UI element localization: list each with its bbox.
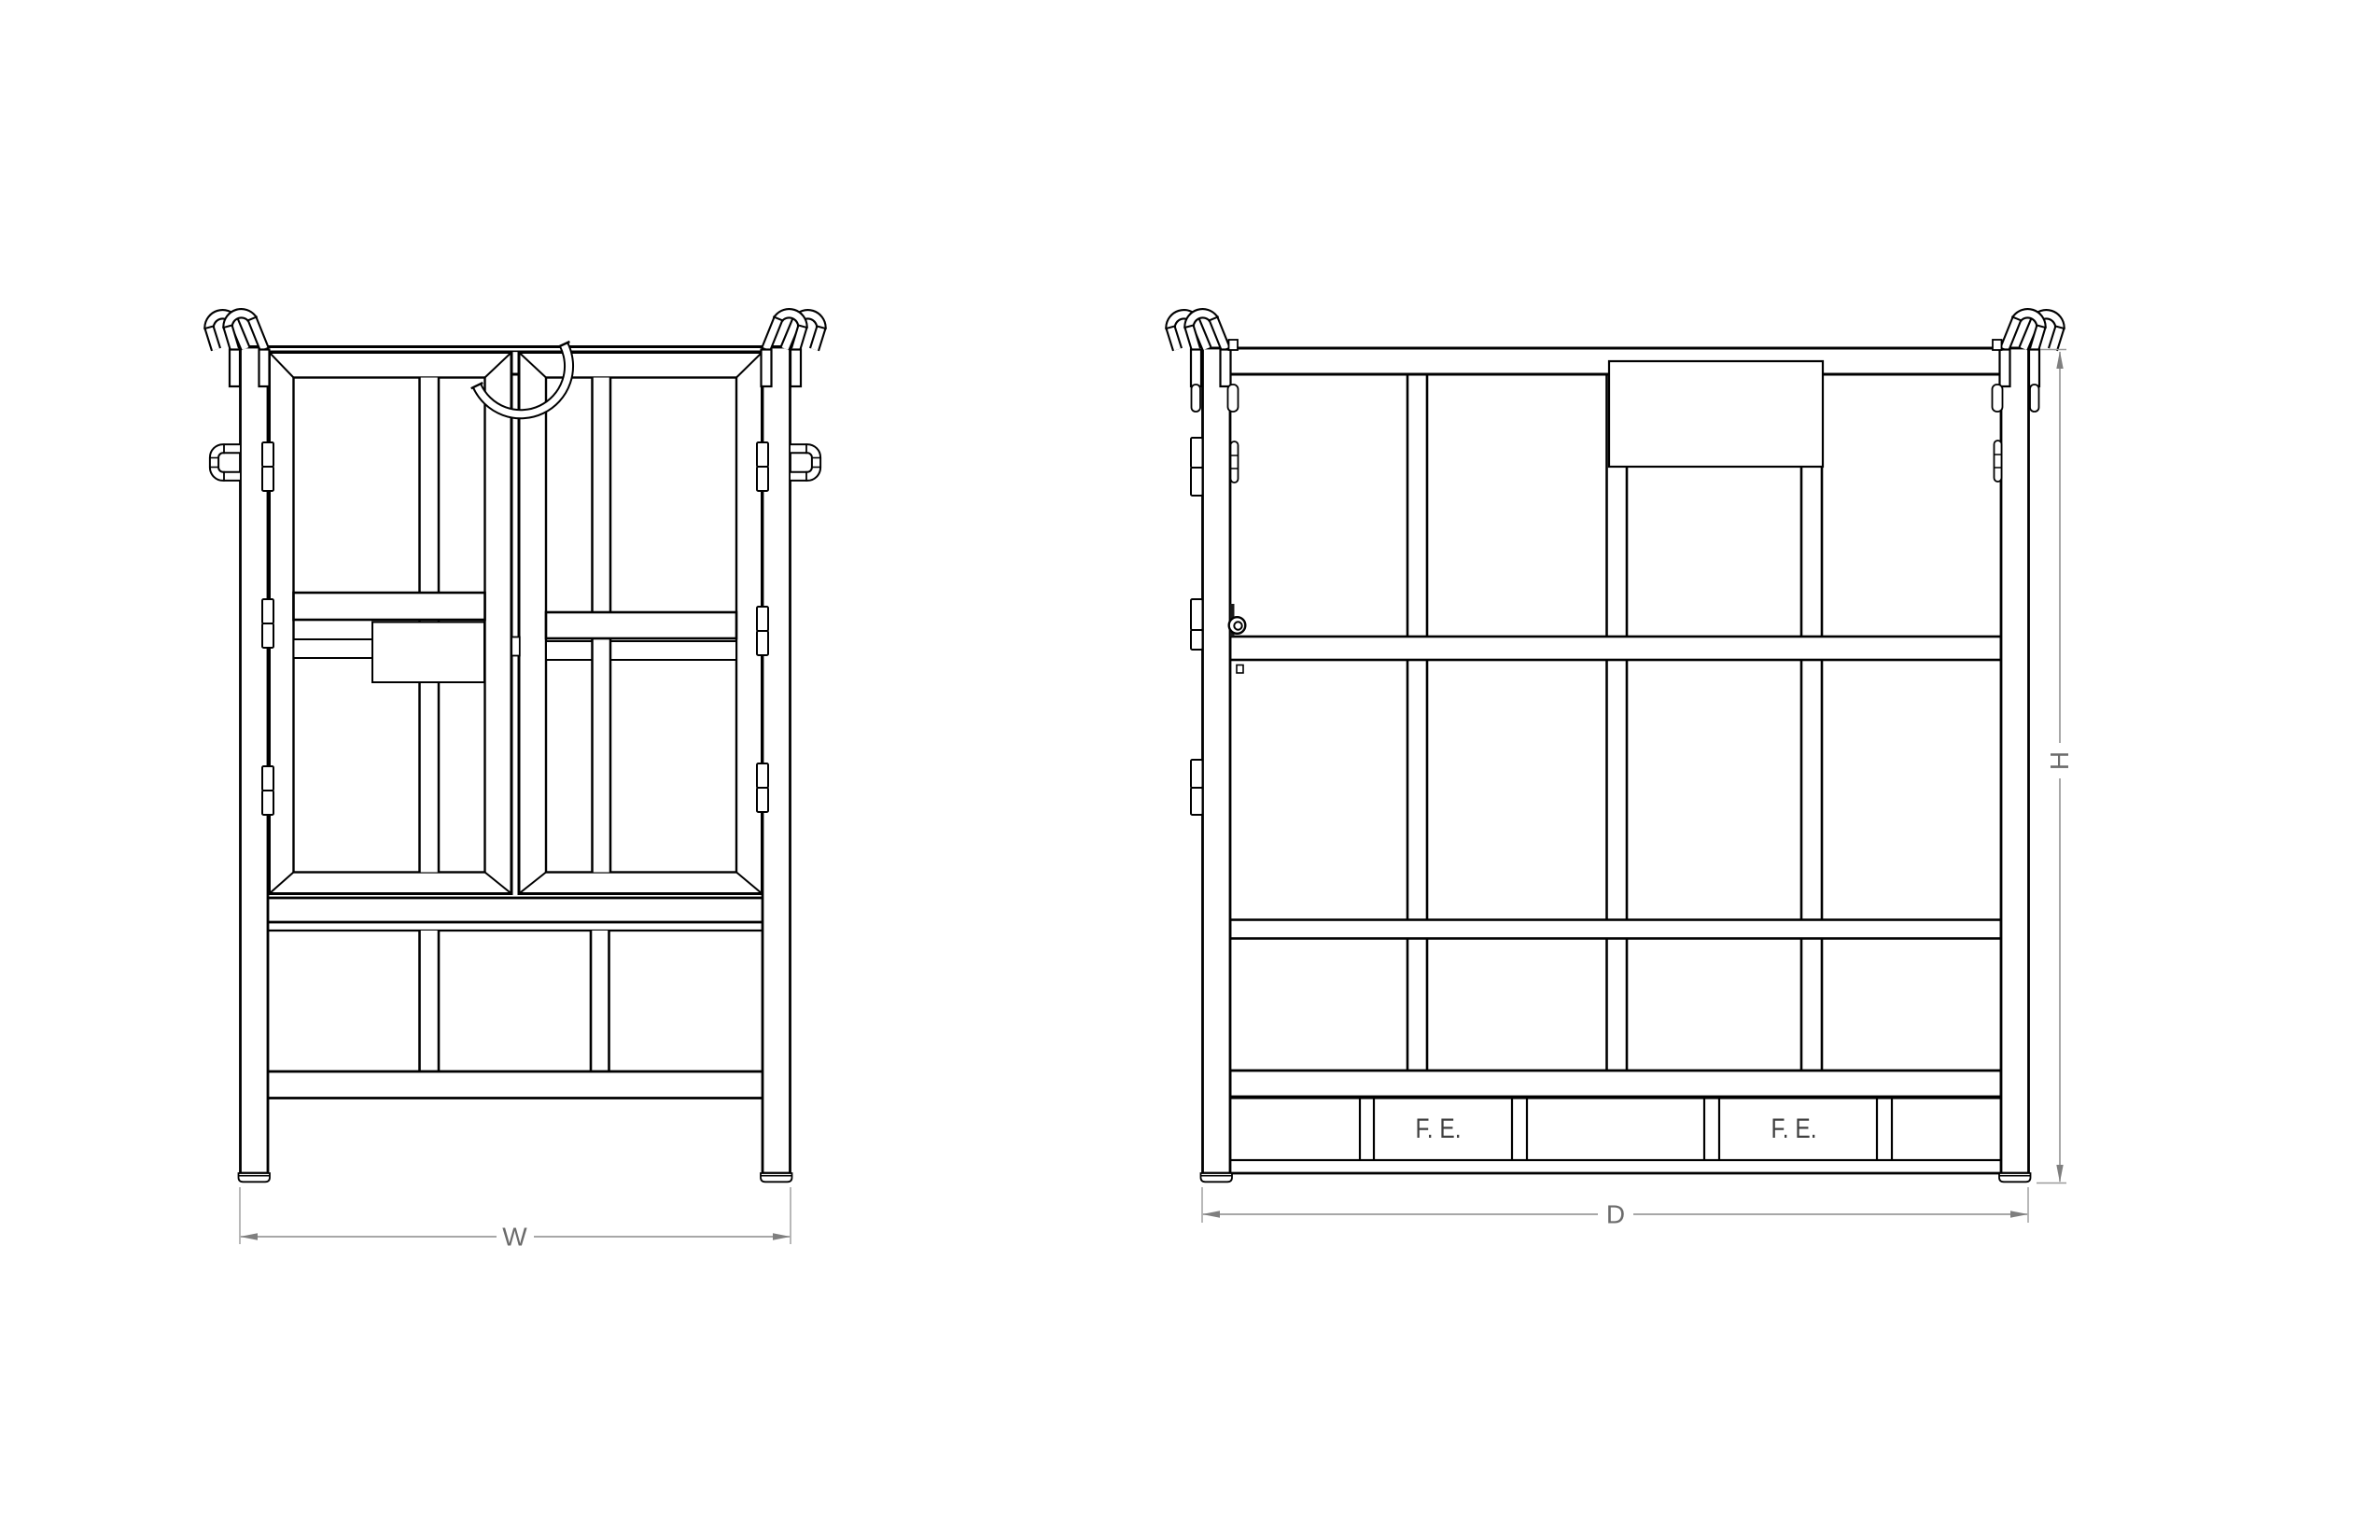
svg-text:W: W [502,1223,527,1252]
svg-text:F. E.: F. E. [1416,1113,1462,1144]
svg-text:F. E.: F. E. [1771,1113,1817,1144]
svg-text:D: D [1606,1200,1625,1229]
svg-text:H: H [2045,751,2074,770]
